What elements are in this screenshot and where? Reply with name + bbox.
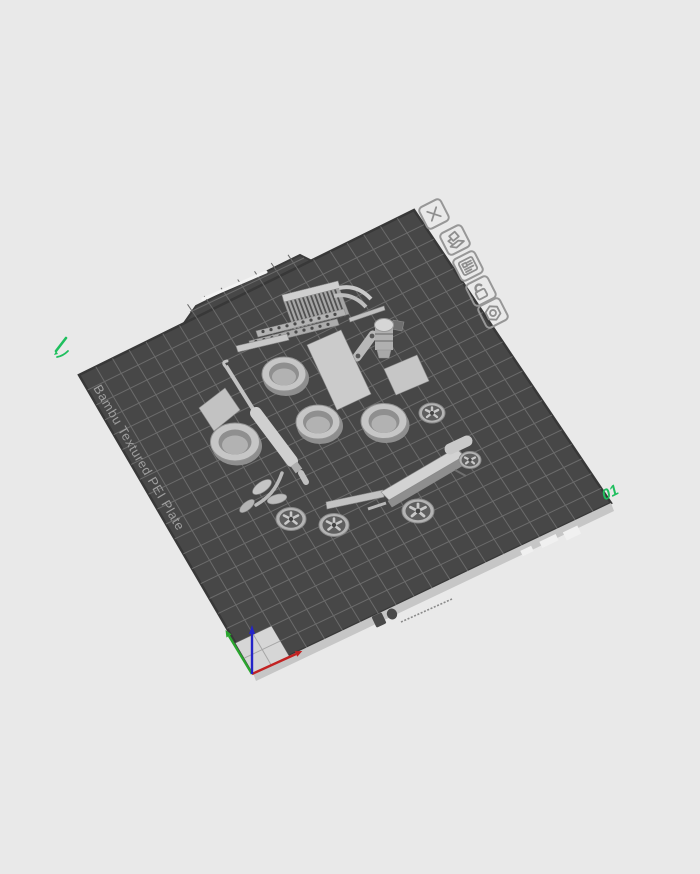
model-spoked-wheel-1[interactable] bbox=[419, 403, 445, 423]
model-spoked-wheel-5[interactable] bbox=[459, 452, 481, 469]
model-spoked-wheel-2[interactable] bbox=[276, 508, 306, 531]
viewport-3d[interactable]: Bambu Textured PEI Plate bbox=[0, 0, 700, 874]
model-spoked-wheel-3[interactable] bbox=[319, 514, 349, 537]
model-spoked-wheel-4[interactable] bbox=[402, 499, 434, 523]
